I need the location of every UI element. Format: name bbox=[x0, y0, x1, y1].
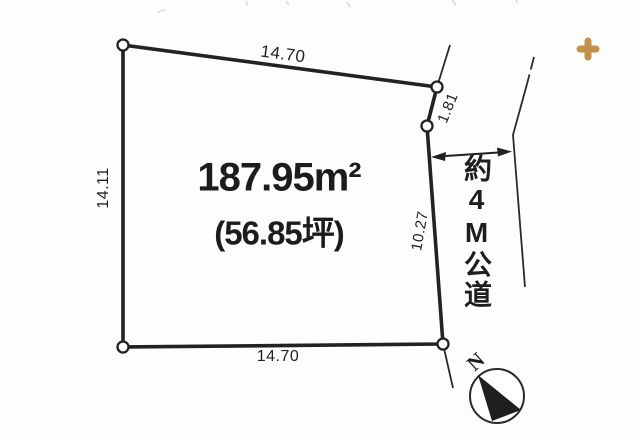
area-tsubo-label: (56.85坪) bbox=[197, 207, 360, 255]
road-label: 約4M公道 bbox=[456, 154, 496, 310]
boundary-extension-bottom bbox=[443, 344, 453, 388]
arrow-right-head bbox=[497, 148, 512, 157]
vertex-marker bbox=[432, 82, 443, 93]
dim-left-label: 14.11 bbox=[96, 167, 112, 208]
vertex-marker bbox=[118, 342, 129, 353]
road-edge-dashed bbox=[527, 57, 534, 84]
north-compass bbox=[470, 369, 524, 423]
land-survey-diagram: 14.70 14.11 1.81 10.27 14.70 187.95m² (5… bbox=[0, 0, 640, 440]
arrow-left-head bbox=[431, 152, 446, 161]
vertex-marker bbox=[422, 121, 433, 132]
vertex-marker bbox=[438, 339, 449, 350]
cursor-crosshair-icon bbox=[580, 41, 596, 57]
dim-bottom-label: 14.70 bbox=[257, 349, 300, 365]
vertex-marker bbox=[118, 40, 129, 51]
area-block: 187.95m² (56.85坪) bbox=[197, 156, 360, 255]
road-edge-line bbox=[513, 84, 527, 287]
scan-artifacts bbox=[158, 0, 517, 13]
area-label: 187.95m² bbox=[197, 156, 360, 201]
